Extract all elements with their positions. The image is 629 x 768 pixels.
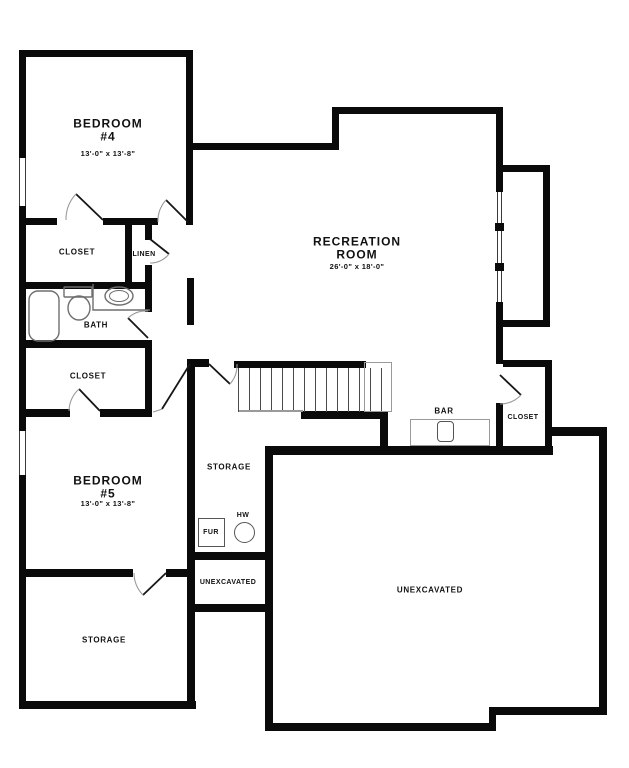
door-swing-bedroom4 [158,200,188,222]
window [19,158,26,208]
door-swing-storage [134,573,166,595]
closet-bed5-label: CLOSET [70,373,106,382]
wall [19,340,152,348]
bedroom4-label: BEDROOM #4 [73,118,142,145]
recreation-room-label: RECREATION ROOM [313,236,401,263]
wall [19,701,196,709]
wall [545,360,552,455]
wall [166,569,195,577]
closet-bed4-label: CLOSET [59,249,95,258]
door-swing-closet-rec [500,375,521,404]
door-swing-bath [128,311,148,338]
storage-lower-label: STORAGE [82,637,126,646]
door-swing-closet-bed4 [66,194,103,220]
wall [186,143,339,150]
recreation-room-dimensions: 26'-0" x 18'-0" [330,263,385,271]
door-swing-bedroom5 [153,364,190,412]
door-swing-closet-bed5 [69,389,100,411]
wall [265,723,496,731]
window [497,192,502,302]
wall [188,552,270,560]
wall [145,282,152,312]
wall [145,218,152,240]
water-heater [234,522,255,543]
wall [545,427,607,436]
wall [19,206,26,433]
closet-rec-label: CLOSET [508,414,539,422]
wall [265,446,273,731]
toilet [64,287,92,320]
unexcavated-left-label: UNEXCAVATED [200,579,256,587]
bar-sink [437,421,454,442]
stair-landing [364,362,392,412]
wall [489,707,607,715]
window-mullion [495,223,504,231]
bedroom4-dimensions: 13'-0" x 13'-8" [81,150,136,158]
bathtub [29,291,59,341]
wall [19,282,152,289]
furnace-label: FUR [203,529,219,537]
bedroom5-label: BEDROOM #5 [73,475,142,502]
wall [188,604,270,612]
unexcavated-main-label: UNEXCAVATED [397,587,463,596]
linen-label: LINEN [132,251,155,259]
wall [19,50,193,57]
wall [125,218,132,289]
wall [332,107,503,114]
wall [19,569,133,577]
wall [543,165,550,327]
stair-edge [239,410,303,412]
wall [193,359,209,367]
storage-hall-label: STORAGE [207,464,251,473]
wall [100,409,152,417]
bar-label: BAR [434,408,453,417]
wall [19,50,26,160]
water-heater-label: HW [237,512,250,520]
wall [234,361,366,368]
wall [599,427,607,715]
bath-label: BATH [84,322,108,331]
wall [19,218,57,225]
wall [496,107,503,192]
window [19,431,26,477]
bedroom5-dimensions: 13'-0" x 13'-8" [81,500,136,508]
wall [187,278,194,325]
wall [19,475,26,709]
wall [186,50,193,225]
wall [496,302,503,364]
wall [187,359,195,709]
wall [380,411,388,455]
wall [265,446,553,455]
floor-plan: BEDROOM #4 13'-0" x 13'-8" RECREATION RO… [0,0,629,768]
door-swing-stairs [209,364,237,384]
window-mullion [495,263,504,271]
wall [145,340,152,417]
wall [301,411,388,419]
wall [19,409,70,417]
wall [503,320,550,327]
